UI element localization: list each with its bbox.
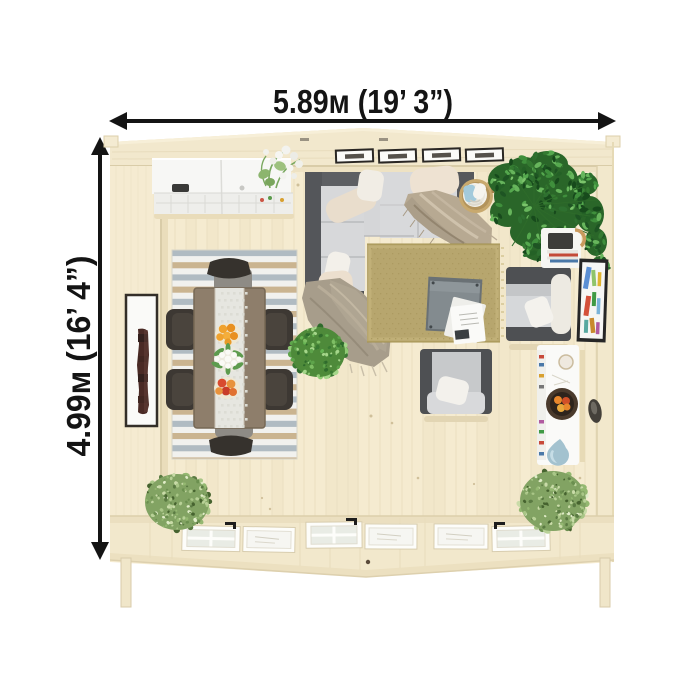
- svg-text:5.89м (19’ 3”): 5.89м (19’ 3”): [273, 83, 453, 120]
- svg-text:4.99м (16’ 4”): 4.99м (16’ 4”): [60, 256, 97, 457]
